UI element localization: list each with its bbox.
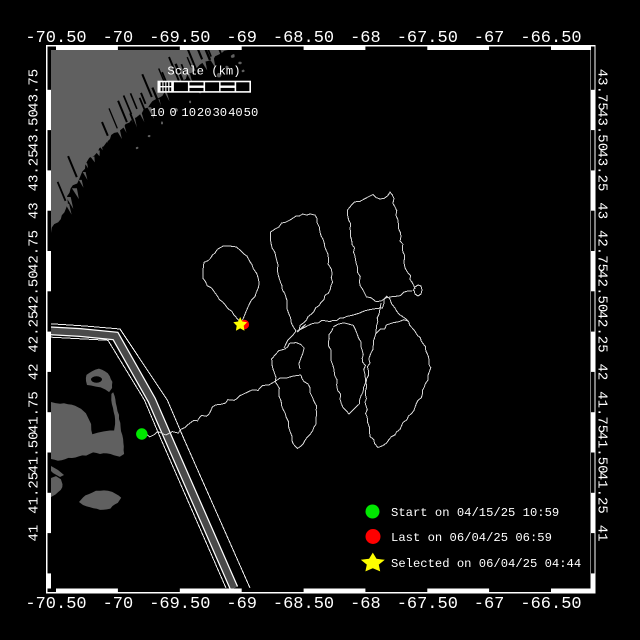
svg-text:-67.50: -67.50 — [397, 29, 458, 48]
svg-text:42.25: 42.25 — [594, 311, 610, 353]
svg-text:Start on 04/15/25 10:59: Start on 04/15/25 10:59 — [391, 506, 559, 520]
svg-text:43.25: 43.25 — [27, 149, 43, 191]
svg-text:-66.50: -66.50 — [520, 29, 581, 48]
svg-text:-68.50: -68.50 — [273, 29, 334, 48]
svg-text:50: 50 — [244, 106, 259, 120]
svg-text:43.50: 43.50 — [27, 109, 43, 151]
svg-text:43.50: 43.50 — [594, 109, 610, 151]
svg-text:43: 43 — [27, 202, 43, 219]
svg-text:41: 41 — [27, 525, 43, 542]
svg-text:41.25: 41.25 — [27, 472, 43, 514]
svg-text:42.75: 42.75 — [27, 230, 43, 272]
svg-text:41.75: 41.75 — [27, 391, 43, 433]
svg-text:41.25: 41.25 — [594, 472, 610, 514]
svg-text:-70: -70 — [103, 595, 134, 614]
svg-text:41.75: 41.75 — [594, 391, 610, 433]
svg-text:-68.50: -68.50 — [273, 595, 334, 614]
svg-text:-68: -68 — [350, 29, 381, 48]
svg-text:42.25: 42.25 — [27, 311, 43, 353]
svg-text:42.50: 42.50 — [27, 270, 43, 312]
svg-text:-70.50: -70.50 — [25, 595, 86, 614]
svg-text:Selected on 06/04/25 04:44: Selected on 06/04/25 04:44 — [391, 557, 581, 571]
svg-text:10: 10 — [150, 106, 165, 120]
svg-text:-69.50: -69.50 — [149, 29, 210, 48]
svg-text:10: 10 — [181, 106, 196, 120]
svg-text:Scale (km): Scale (km) — [167, 65, 240, 79]
svg-text:-69: -69 — [226, 595, 257, 614]
svg-text:20: 20 — [197, 106, 212, 120]
svg-text:-68: -68 — [350, 595, 381, 614]
svg-text:-70: -70 — [103, 29, 134, 48]
svg-text:-70.50: -70.50 — [25, 29, 86, 48]
svg-text:42: 42 — [594, 363, 610, 380]
svg-text:43: 43 — [594, 202, 610, 219]
svg-text:-67: -67 — [474, 29, 505, 48]
svg-text:30: 30 — [212, 106, 227, 120]
svg-text:-67.50: -67.50 — [397, 595, 458, 614]
svg-text:42.50: 42.50 — [594, 270, 610, 312]
svg-text:-69: -69 — [226, 29, 257, 48]
svg-text:42: 42 — [27, 363, 43, 380]
svg-text:41.50: 41.50 — [27, 431, 43, 473]
svg-text:43.75: 43.75 — [594, 69, 610, 111]
svg-text:41: 41 — [594, 525, 610, 542]
svg-text:41.50: 41.50 — [594, 431, 610, 473]
svg-text:43.25: 43.25 — [594, 149, 610, 191]
svg-text:42.75: 42.75 — [594, 230, 610, 272]
svg-text:-69.50: -69.50 — [149, 595, 210, 614]
svg-text:0: 0 — [169, 106, 176, 120]
svg-text:-66.50: -66.50 — [520, 595, 581, 614]
svg-text:43.75: 43.75 — [27, 69, 43, 111]
svg-text:40: 40 — [228, 106, 243, 120]
svg-text:Last on 06/04/25 06:59: Last on 06/04/25 06:59 — [391, 531, 552, 545]
svg-text:-67: -67 — [474, 595, 505, 614]
